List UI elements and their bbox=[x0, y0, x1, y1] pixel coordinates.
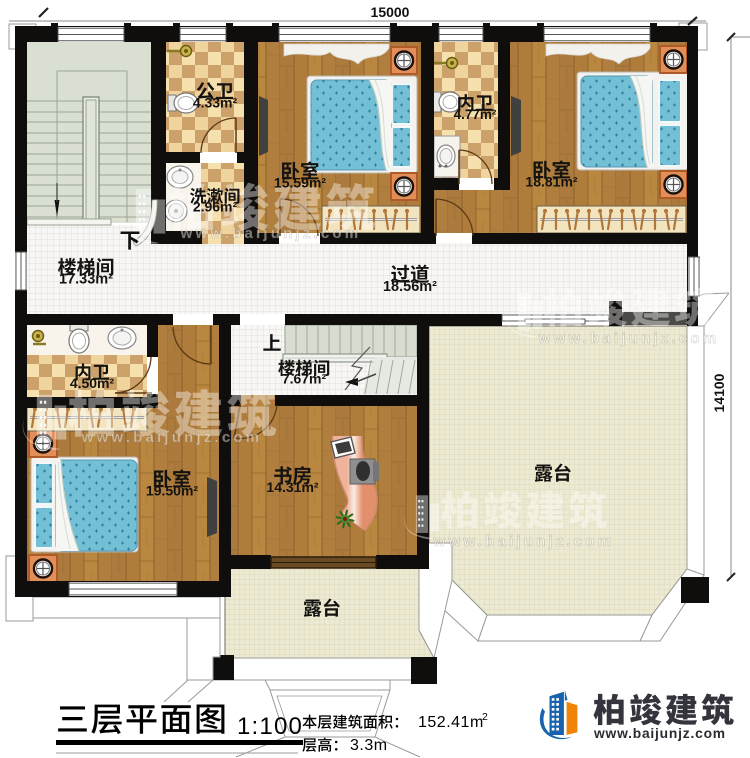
svg-text:7.67m²: 7.67m² bbox=[282, 371, 327, 387]
svg-text:18.81m²: 18.81m² bbox=[525, 173, 577, 189]
svg-text:4.77m²: 4.77m² bbox=[454, 107, 497, 122]
svg-text:www.baijunjz.com: www.baijunjz.com bbox=[433, 533, 615, 550]
svg-text:4.33m²: 4.33m² bbox=[193, 94, 238, 110]
svg-text:152.41m: 152.41m bbox=[418, 714, 484, 731]
svg-text:4.50m²: 4.50m² bbox=[70, 375, 115, 391]
svg-text:18.56m²: 18.56m² bbox=[383, 279, 437, 295]
svg-text:19.50m²: 19.50m² bbox=[146, 482, 198, 498]
svg-text:15.59m²: 15.59m² bbox=[274, 174, 326, 190]
svg-text:14100: 14100 bbox=[711, 373, 727, 412]
svg-text:14.31m²: 14.31m² bbox=[266, 479, 318, 495]
svg-text:www.baijunjz.com: www.baijunjz.com bbox=[538, 330, 720, 347]
svg-text:1:100: 1:100 bbox=[237, 713, 303, 740]
svg-text:2: 2 bbox=[482, 711, 488, 723]
svg-text:www.baijunjz.com: www.baijunjz.com bbox=[180, 225, 362, 242]
svg-text:3.3m: 3.3m bbox=[350, 737, 388, 754]
svg-text:www.baijunjz.com: www.baijunjz.com bbox=[81, 429, 263, 446]
svg-text:2.96m²: 2.96m² bbox=[193, 198, 238, 214]
svg-text:15000: 15000 bbox=[371, 4, 410, 20]
svg-text:17.33m²: 17.33m² bbox=[59, 272, 113, 288]
svg-text:www.baijunjz.com: www.baijunjz.com bbox=[593, 726, 726, 741]
